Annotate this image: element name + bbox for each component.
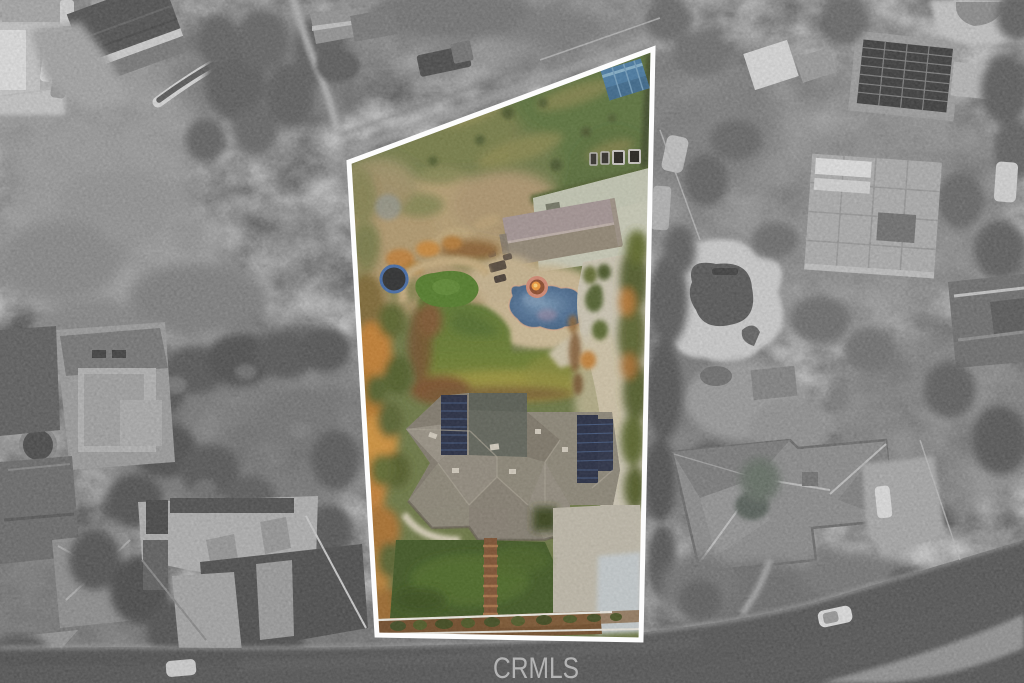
svg-text:CRMLS: CRMLS	[493, 652, 579, 683]
